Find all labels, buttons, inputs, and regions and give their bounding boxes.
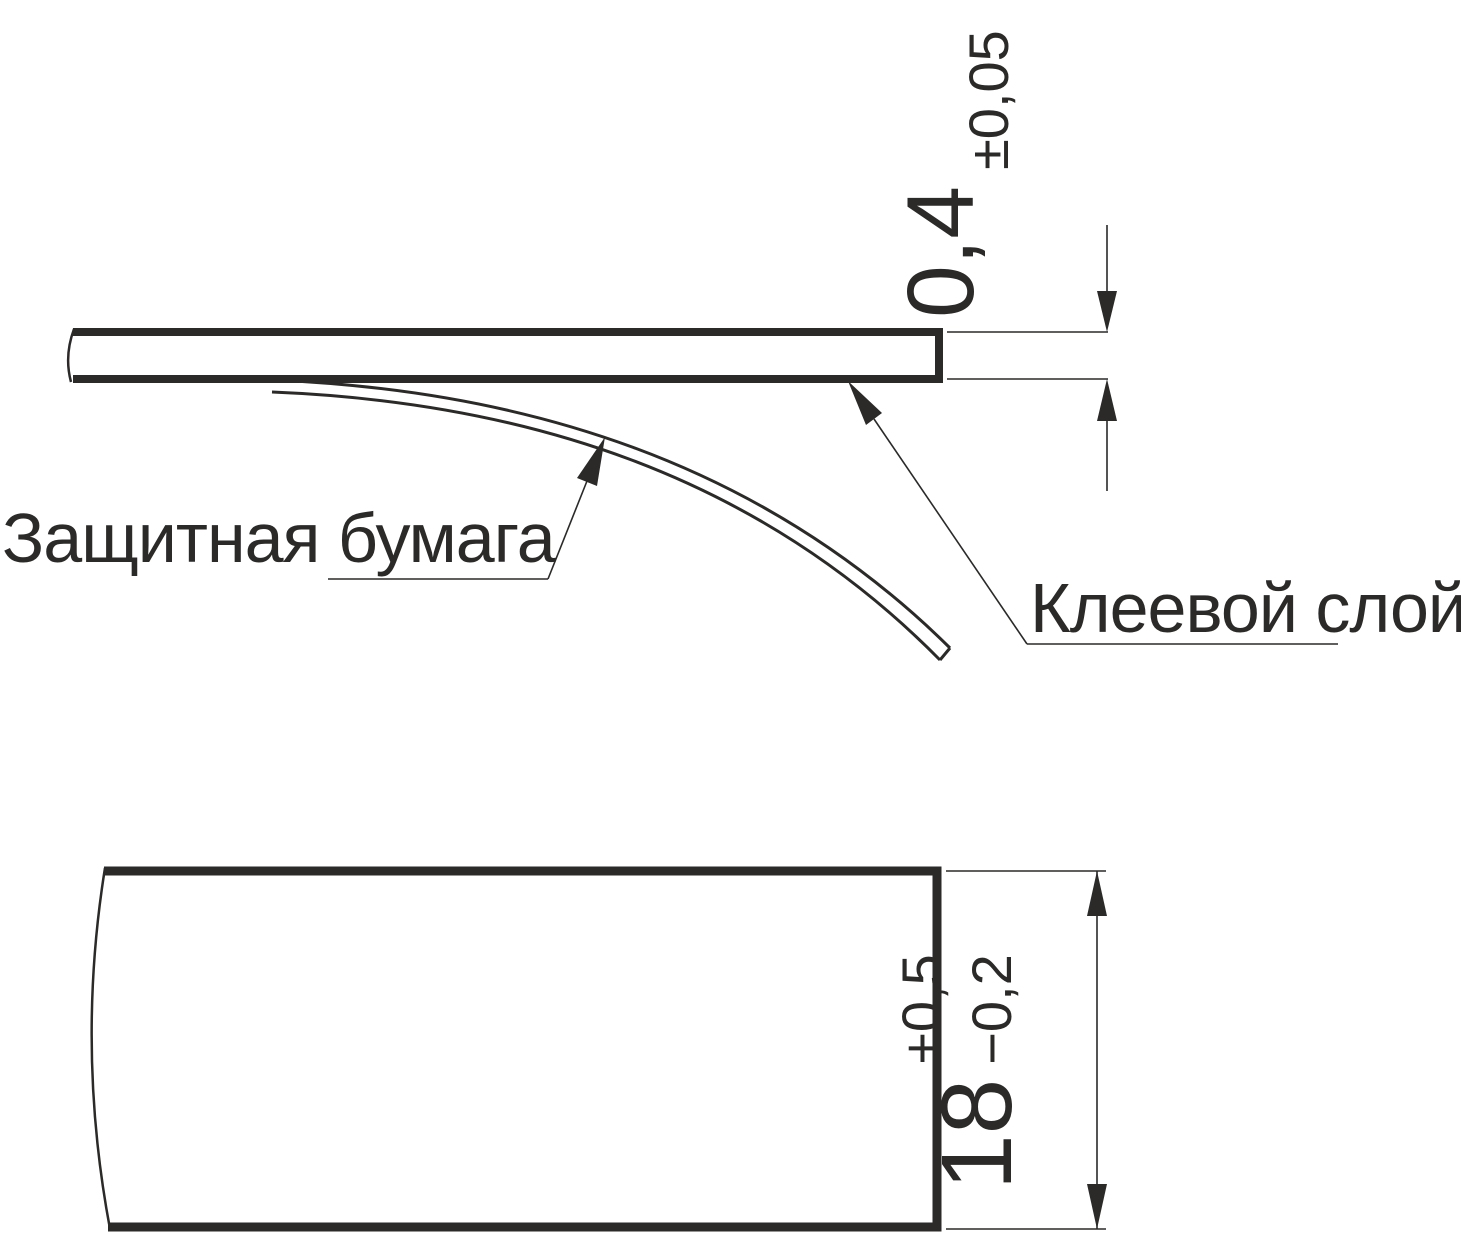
dimension-arrow-icon bbox=[1097, 291, 1117, 332]
leader-arrow-icon bbox=[848, 381, 882, 425]
tape-top-body bbox=[104, 871, 937, 1227]
tape-top-view bbox=[92, 868, 937, 1229]
dimension-width: 18+0,5−0,2 bbox=[887, 954, 987, 1190]
dimension-arrow-icon bbox=[1087, 1184, 1107, 1229]
thickness-tolerance: ±0,05 bbox=[957, 30, 1020, 170]
tape-side-body bbox=[73, 332, 939, 379]
drawing-canvas: Защитная бумага Клеевой слой 0,4±0,05 18… bbox=[0, 0, 1461, 1234]
width-tolerance-minus: −0,2 bbox=[957, 954, 1027, 1065]
dimension-thickness: 0,4±0,05 bbox=[894, 30, 989, 318]
paper-curve-endcap bbox=[940, 648, 950, 660]
tape-side-view bbox=[68, 329, 939, 382]
leader-shaft bbox=[874, 419, 1027, 644]
width-tolerance-plus: +0,5 bbox=[887, 954, 957, 1065]
label-adhesive-layer: Клеевой слой bbox=[1030, 573, 1461, 643]
width-value: 18 bbox=[921, 1079, 1033, 1190]
dimension-arrow-icon bbox=[1087, 871, 1107, 916]
label-protective-paper: Защитная бумага bbox=[2, 503, 555, 573]
width-tolerance-stack: +0,5−0,2 bbox=[887, 954, 1027, 1065]
thickness-value: 0,4 bbox=[888, 186, 994, 318]
dimension-arrow-icon bbox=[1097, 379, 1117, 421]
